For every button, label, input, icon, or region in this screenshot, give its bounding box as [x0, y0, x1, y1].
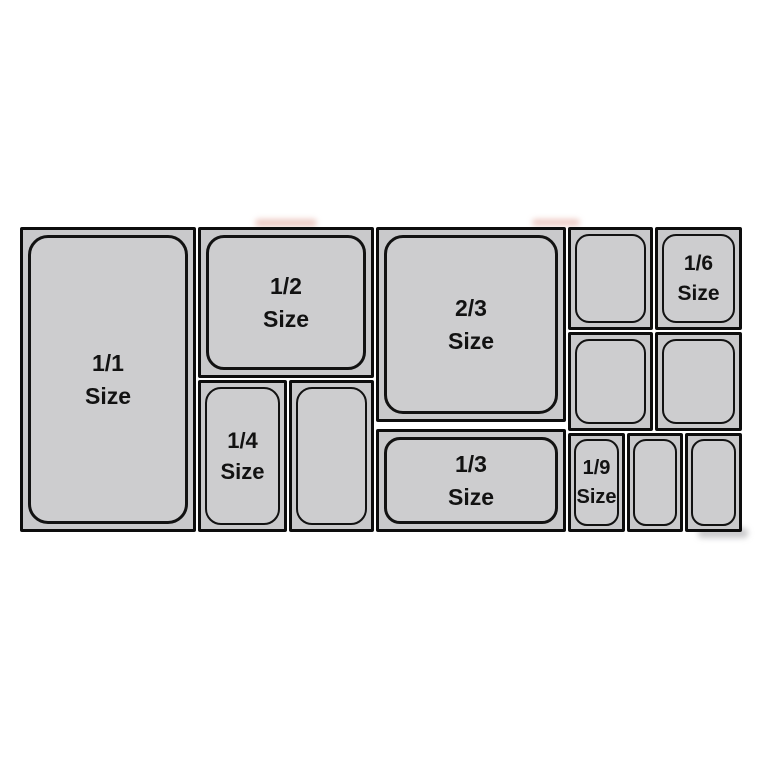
pan-full-size-inner: 1/1 Size	[28, 235, 188, 524]
pan-sixth-size-bottom-right	[655, 332, 742, 431]
pan-ninth-size-label: 1/9 Size	[576, 454, 616, 511]
pan-ninth-size-labeled: 1/9 Size	[568, 433, 625, 532]
pan-sixth-size-bottom-right-inner	[662, 339, 735, 424]
pan-third-size-inner: 1/3 Size	[384, 437, 558, 524]
pan-sixth-size-bottom-left-inner	[575, 339, 646, 424]
pan-quarter-size-unlabeled	[289, 380, 374, 532]
pan-ninth-size-word: Size	[576, 483, 616, 511]
pan-ninth-size-labeled-inner: 1/9 Size	[574, 439, 619, 526]
pan-sixth-size-top-left	[568, 227, 653, 330]
pan-sixth-size-top-left-inner	[575, 234, 646, 323]
artifact-smudge	[532, 219, 580, 226]
pan-quarter-size-label: 1/4 Size	[220, 425, 264, 487]
pan-third-size-label: 1/3 Size	[448, 448, 494, 513]
pan-two-thirds-size-inner: 2/3 Size	[384, 235, 558, 414]
pan-sixth-size-fraction: 1/6	[677, 249, 719, 279]
pan-third-size-fraction: 1/3	[448, 448, 494, 481]
pan-ninth-size-middle	[627, 433, 683, 532]
pan-quarter-size-word: Size	[220, 456, 264, 487]
pan-full-size-word: Size	[85, 380, 131, 413]
pan-full-size-label: 1/1 Size	[85, 347, 131, 412]
pan-sixth-size-labeled: 1/6 Size	[655, 227, 742, 330]
pan-half-size: 1/2 Size	[198, 227, 374, 378]
pan-ninth-size-fraction: 1/9	[576, 454, 616, 482]
pan-quarter-size-inner: 1/4 Size	[205, 387, 280, 525]
pan-full-size-fraction: 1/1	[85, 347, 131, 380]
pan-sixth-size-label: 1/6 Size	[677, 249, 719, 309]
pan-quarter-size-unlabeled-inner	[296, 387, 367, 525]
pan-two-thirds-size-label: 2/3 Size	[448, 292, 494, 357]
pan-full-size: 1/1 Size	[20, 227, 196, 532]
pan-two-thirds-size-fraction: 2/3	[448, 292, 494, 325]
pan-sixth-size-bottom-left	[568, 332, 653, 431]
pan-third-size-word: Size	[448, 481, 494, 514]
pan-quarter-size: 1/4 Size	[198, 380, 287, 532]
pan-sixth-size-word: Size	[677, 279, 719, 309]
pan-ninth-size-middle-inner	[633, 439, 677, 526]
pan-half-size-inner: 1/2 Size	[206, 235, 366, 370]
pan-third-size: 1/3 Size	[376, 429, 566, 532]
pan-half-size-label: 1/2 Size	[263, 270, 309, 335]
pan-quarter-size-fraction: 1/4	[220, 425, 264, 456]
gastronorm-size-diagram: 1/1 Size 1/2 Size 1/4 Size 2/3	[0, 0, 768, 768]
pan-sixth-size-labeled-inner: 1/6 Size	[662, 234, 735, 323]
pan-two-thirds-size-word: Size	[448, 325, 494, 358]
artifact-smudge	[255, 219, 317, 227]
pan-two-thirds-size: 2/3 Size	[376, 227, 566, 422]
pan-half-size-word: Size	[263, 303, 309, 336]
pan-ninth-size-right-inner	[691, 439, 736, 526]
pan-ninth-size-right	[685, 433, 742, 532]
pan-half-size-fraction: 1/2	[263, 270, 309, 303]
